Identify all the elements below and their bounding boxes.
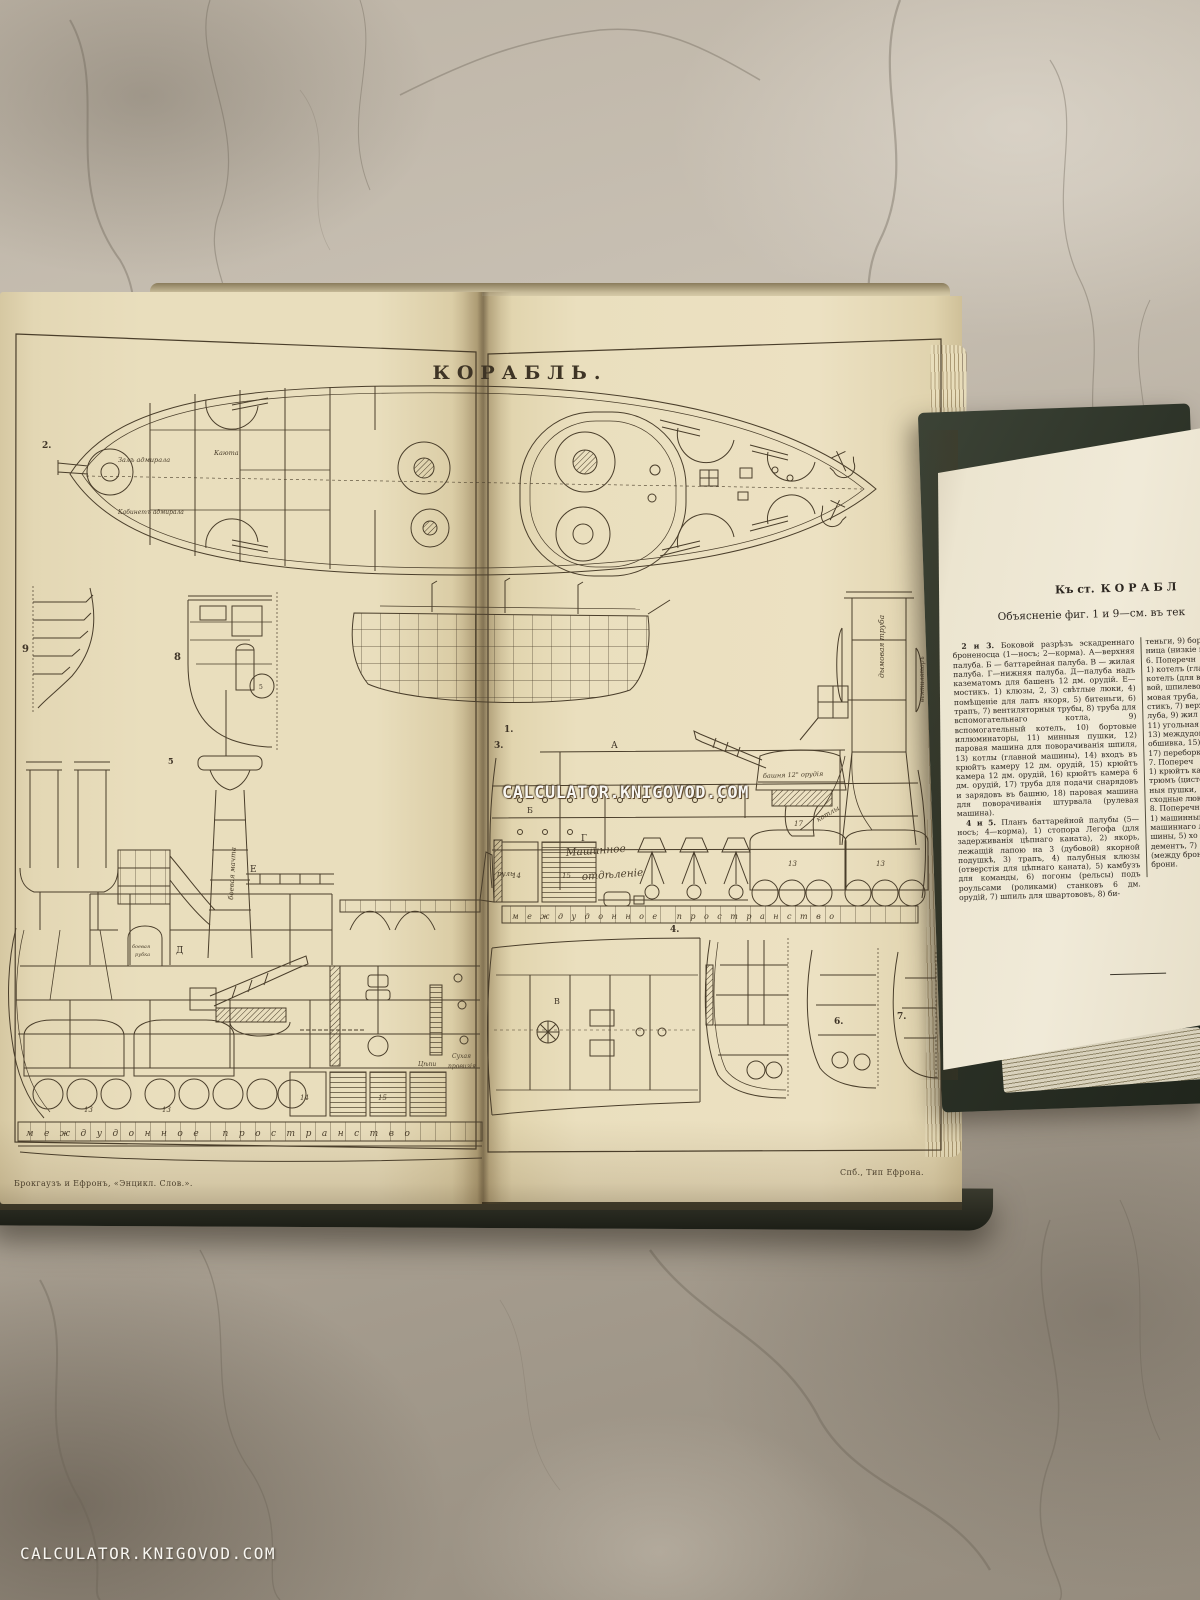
booklet-text-block: Къ ст.КОРАБЛ Объясненіе фиг. 1 и 9—см. в… [933,422,1200,1071]
booklet-header-prefix: Къ ст. [1055,582,1095,596]
booklet-header: Къ ст.КОРАБЛ [1055,580,1181,596]
booklet-column-right: теньги, 9) борт ница (низкіе ш 6. Попере… [1140,636,1200,878]
explanation-paragraph: 4 и 5. Планъ баттарейной палубы (5—носъ;… [957,814,1141,902]
booklet-column-left: 2 и 3. Боковой разрѣзъ эскадреннаго брон… [952,637,1141,902]
center-watermark: CALCULATOR.KNIGOVOD.COM [502,783,749,803]
booklet-explanation-page: Къ ст.КОРАБЛ Объясненіе фиг. 1 и 9—см. в… [938,428,1200,1070]
imprint-publisher: Брокгаузъ и Ефронъ, «Энцикл. Слов.». [14,1179,193,1188]
booklet-divider-rule [1110,973,1166,975]
photo-of-open-book: КОРАБЛЬ. [0,0,1200,1600]
book-gutter-shadow [452,292,512,1204]
plate-title: КОРАБЛЬ. [420,362,620,384]
explanation-paragraph: 2 и 3. Боковой разрѣзъ эскадреннаго брон… [952,637,1139,818]
atlas-right-page [482,296,962,1202]
imprint-printer: Спб., Тип Ефрона. [840,1168,924,1177]
booklet-subheader: Объясненіе фиг. 1 и 9—см. въ тек [998,606,1186,623]
booklet-header-word: КОРАБЛ [1100,580,1180,595]
corner-watermark: CALCULATOR.KNIGOVOD.COM [20,1544,276,1563]
atlas-left-page [0,292,482,1204]
